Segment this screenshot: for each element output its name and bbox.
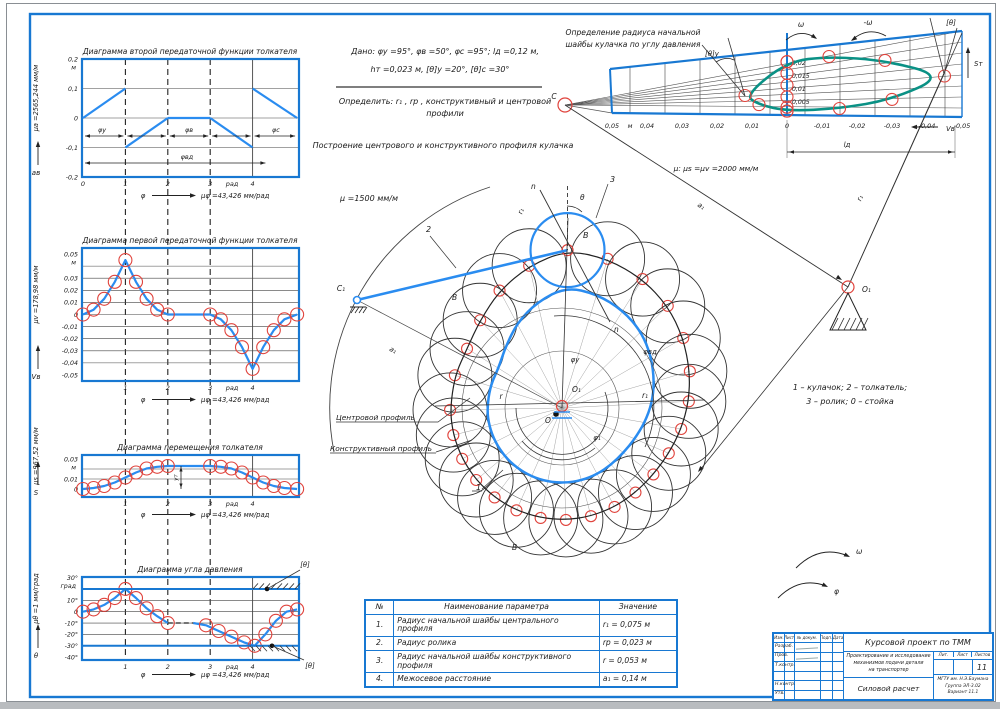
legend-line1: 1 – кулачок; 2 – толкатель; (793, 383, 907, 392)
y-unit: град (60, 583, 76, 590)
y-tick: -30° (65, 642, 78, 650)
v-tick: 0,02 (710, 122, 724, 130)
x-tick: 2 (166, 180, 170, 188)
plot-curve (83, 466, 297, 489)
list-label: Лист (953, 652, 972, 657)
x-unit: рад (225, 180, 239, 188)
b-bottom-label: B (512, 543, 517, 552)
x-tick: 0 (81, 180, 85, 188)
x-tick: 1 (123, 384, 127, 392)
fan-line (565, 64, 962, 105)
sheet-bottom-shadow (0, 702, 1000, 709)
a1-dim-label: a₁ (696, 201, 706, 212)
x-unit: рад (225, 384, 239, 392)
tb-signature (796, 647, 818, 649)
x-scale-label: μφ =43,426 мм/рад (200, 511, 270, 519)
svg-text:φу: φу (98, 126, 106, 134)
y-tick: 0,03 (64, 456, 78, 463)
y-tick: 0,03 (64, 276, 78, 283)
point-c-label: C (551, 92, 557, 101)
table-row: 4.Межосевое расстояниеa₁ = 0,14 м (365, 673, 677, 687)
tb-head-col: Изм. (774, 635, 784, 640)
tb-row-label: Н.контр. (775, 682, 795, 687)
tb-org-line: МГТУ им. Н.Э.Баумана (934, 677, 992, 684)
plot-curve (193, 609, 297, 645)
s-tick: 0,015 (792, 73, 810, 80)
x-tick: 3 (208, 500, 212, 508)
x-axis-symbol: φ (141, 511, 146, 519)
tb-signature (796, 657, 818, 659)
tb-hline (774, 671, 844, 672)
x-tick: 2 (166, 500, 170, 508)
x-axis-symbol: φ (141, 396, 146, 404)
callout-2: 2 (426, 225, 431, 234)
y-tick: 0,02 (64, 288, 78, 295)
y-unit: м (71, 465, 76, 472)
table-cell: 1. (365, 614, 394, 636)
table-cell: 3. (365, 650, 394, 672)
tr-scale: μ: μs =μv =2000 мм/м (673, 164, 759, 173)
tb-desc-line: механизмов подачи детали (844, 661, 933, 668)
given-line2: hт =0,023 м, [θ]у =20°, [θ]с =30° (371, 65, 510, 74)
table-header-name: Наименование параметра (394, 600, 600, 614)
plot-curve (253, 89, 298, 119)
r-label: r (499, 392, 503, 401)
table-cell: Радиус ролика (394, 637, 600, 651)
y-scale-label: μθ =1 мм/град (32, 573, 40, 625)
table-header-value: Значение (599, 600, 677, 614)
tb-head-col: Лист (784, 635, 794, 640)
v-tick: 0,05 (605, 122, 619, 130)
titleblock-lit-row: Лит. Лист Листов (934, 652, 992, 660)
phi-1-label: φ₁ (593, 434, 601, 442)
y-unit: м (71, 260, 76, 267)
svg-text:м: м (628, 122, 633, 130)
svg-text:φс: φс (272, 126, 280, 134)
y-tick: 0,01 (64, 300, 78, 307)
listov-label: Листов (973, 652, 992, 657)
stand-point-label: O₁ (862, 285, 871, 294)
o-label: O (545, 416, 551, 425)
plot-title: Диаграмма второй передаточной функции то… (82, 47, 298, 56)
titleblock-project: Курсовой проект по ТММ (844, 634, 992, 652)
x-tick: 1 (123, 663, 127, 671)
a1-label: a₁ (388, 345, 398, 355)
x-tick: 2 (166, 384, 170, 392)
plot-title: Диаграмма первой передаточной функции то… (82, 236, 298, 245)
x-unit: рад (225, 663, 239, 671)
x-tick: 4 (251, 384, 255, 392)
svg-text:φвд: φвд (181, 153, 194, 161)
x-tick: 4 (251, 180, 255, 188)
v-tick: -0,03 (884, 122, 901, 130)
titleblock-org: МГТУ им. Н.Э.БауманаГруппа ЭЛ-3.02Вариан… (934, 675, 992, 699)
tb-head-col: Дата (832, 635, 844, 640)
y-tick: -0,01 (62, 324, 78, 331)
task-line1: Определить: r₁ , rр , конструктивный и ц… (339, 97, 551, 106)
v-tick: 0,03 (675, 122, 689, 130)
table-cell: 2. (365, 637, 394, 651)
y-tick: 10° (67, 597, 78, 605)
lever-pivot (354, 297, 361, 304)
radial-ray (562, 408, 591, 516)
x-tick: 3 (208, 180, 212, 188)
x-tick: 4 (251, 663, 255, 671)
center-profile-label: Центровой профиль (336, 413, 415, 422)
table-header-num: № (365, 600, 394, 614)
tb-desc-line: Проектирование и исследование (844, 654, 933, 661)
titleblock-left: Изм.Лист№ докум.Подп.ДатаРазраб.Пров.Т.к… (774, 634, 844, 699)
v-axis-label: Vв (946, 125, 955, 133)
phi-vd-label: φвд (643, 348, 657, 356)
callout-3: 3 (610, 175, 615, 184)
x-tick: 1 (123, 500, 127, 508)
n-label-top: n (531, 182, 536, 191)
s-axis-label: Sт (974, 60, 983, 68)
tr-title1: Определение радиуса начальной (566, 28, 701, 37)
x-axis-symbol: φ (141, 671, 146, 679)
callout-1: 1 (476, 483, 481, 492)
r-dim-label: r₁ (855, 194, 865, 203)
y-scale-label: μs =967,52 мм/м (32, 427, 40, 486)
c1-label: C₁ (337, 284, 345, 293)
x-tick: 1 (123, 180, 127, 188)
tb-row-label: Утв. (775, 691, 795, 696)
title-block: Изм.Лист№ докум.Подп.ДатаРазраб.Пров.Т.к… (772, 632, 994, 701)
y-tick: -0,03 (62, 348, 78, 355)
y-tick: -20° (65, 631, 78, 639)
y-axis-symbol: aв (32, 169, 40, 177)
given-line1: Дано: φу =95°, φв =50°, φс =95°; lд =0,1… (350, 47, 539, 56)
tb-row-label: Т.контр. (775, 663, 795, 668)
s-tick: 0,01 (792, 86, 806, 93)
v-tick: 0,01 (745, 122, 759, 130)
y-tick: 30° (67, 574, 78, 582)
cam-profile-construction (330, 184, 850, 598)
table-row: 2.Радиус роликаrр = 0,023 м (365, 637, 677, 651)
plot-title: Диаграмма угла давления (137, 565, 243, 574)
legend-line2: 3 – ролик; 0 – стойка (806, 397, 894, 406)
radial-ray (529, 266, 562, 408)
v-tick: -0,02 (849, 122, 866, 130)
titleblock-doctype: Силовой расчет (844, 678, 934, 699)
y-tick: -0,05 (62, 372, 78, 379)
table-cell: r₁ = 0,075 м (599, 614, 677, 636)
drawing-sheet: 0,20,10-0,1-0,2м01234радДиаграмма второй… (0, 0, 1000, 714)
v-tick: 0,04 (640, 122, 654, 130)
b-left-label: B (452, 293, 457, 302)
y-tick: 0,1 (68, 86, 78, 93)
y-tick: 0,2 (68, 56, 78, 63)
theta-u-label: [θ]у (705, 50, 720, 58)
x-tick: 3 (208, 663, 212, 671)
y-tick: -0,2 (66, 174, 78, 181)
tb-row-label: Разраб. (775, 644, 795, 649)
y-tick: 0,01 (64, 476, 78, 483)
x-axis-symbol: φ (141, 192, 146, 200)
tb-head-col: Подп. (820, 635, 832, 640)
y-scale-label: μv =178,98 мм/м (32, 265, 40, 324)
table-row: 3.Радиус начальной шайбы конструктивного… (365, 650, 677, 672)
x-tick: 4 (251, 500, 255, 508)
y-tick: -10° (65, 619, 78, 627)
y-tick: 0 (74, 115, 78, 122)
table-cell: Радиус начальной шайбы центрального проф… (394, 614, 600, 636)
left-plots: 0,20,10-0,1-0,2м01234радДиаграмма второй… (32, 47, 316, 679)
svg-text:yт: yт (174, 473, 180, 481)
x-unit: рад (225, 500, 239, 508)
n-label-bottom: n (614, 325, 619, 334)
svg-text:[θ]: [θ] (305, 662, 315, 670)
y-axis-symbol: θ (34, 652, 39, 660)
minus-omega-label: -ω (864, 18, 873, 27)
table-cell: 4. (365, 673, 394, 687)
radial-ray (480, 320, 562, 408)
tb-row-label: Пров. (775, 653, 795, 658)
task-line2: профили (426, 109, 464, 118)
y-axis-symbol: Vв (32, 373, 41, 381)
omega2-label: ω (856, 547, 862, 556)
radial-ray (541, 408, 562, 518)
y-tick: 0,05 (64, 251, 78, 258)
radial-ray (450, 408, 562, 410)
plot-curve (125, 118, 167, 148)
titleblock-desc: Проектирование и исследованиемеханизмов … (844, 652, 934, 678)
y-tick: -0,04 (62, 360, 78, 367)
plot-title: Диаграмма перемещения толкателя (116, 443, 263, 452)
r1-label: r₁ (642, 391, 648, 400)
construction-heading: Построение центрового и конструктивного … (313, 141, 574, 150)
r1-rot-label: r₁ (516, 207, 526, 215)
y-tick: -0,02 (62, 336, 78, 343)
pressure-angle-construction: 0,050,040,030,020,010-0,01-0,02-0,03-0,0… (558, 18, 970, 472)
table-cell: rр = 0,023 м (599, 637, 677, 651)
theta-angle-label: θ (580, 193, 585, 202)
table-cell: Радиус начальной шайбы конструктивного п… (394, 650, 600, 672)
y-axis-symbol: S (34, 489, 39, 497)
tb-head-col: № докум. (794, 635, 820, 640)
cam-scale-label: μ =1500 мм/м (339, 194, 398, 203)
o1-label: O₁ (572, 385, 581, 394)
table-cell: Межосевое расстояние (394, 673, 600, 687)
omega-label: ω (798, 20, 804, 29)
parameters-table: № Наименование параметра Значение 1.Ради… (364, 599, 678, 688)
v-tick: -0,05 (954, 122, 971, 130)
radial-ray (562, 408, 566, 520)
y-scale-label: μa =2565,244 мм/м (32, 65, 40, 133)
x-scale-label: μφ =43,426 мм/рад (200, 192, 270, 200)
theta-limit-label: [θ] (946, 19, 956, 27)
sheet-row-divider1 (953, 660, 954, 675)
plot-curve (210, 118, 252, 148)
plot-curve (83, 89, 125, 119)
ld-dim-label: lд (844, 141, 851, 149)
svg-text:[θ]: [θ] (300, 561, 310, 569)
y-unit: м (71, 65, 76, 72)
radial-ray (562, 408, 615, 507)
table-cell: r = 0,053 м (599, 650, 677, 672)
radial-ray (562, 408, 681, 429)
table-cell: a₁ = 0,14 м (599, 673, 677, 687)
x-scale-label: μφ =43,426 мм/рад (200, 671, 270, 679)
v-tick: -0,01 (814, 122, 831, 130)
titleblock-sheet-row: 11 (934, 660, 992, 675)
s-tick: 0,005 (792, 99, 810, 106)
param-table-body: 1.Радиус начальной шайбы центрального пр… (365, 614, 677, 687)
b-top-label: B (583, 231, 589, 240)
table-row: 1.Радиус начальной шайбы центрального пр… (365, 614, 677, 636)
phi2-label: φ (834, 587, 839, 596)
phi-u-label: φу (571, 356, 581, 364)
y-tick: -40° (65, 653, 78, 661)
lit-label: Лит. (934, 652, 953, 657)
tb-org-line: Вариант 11.1 (934, 690, 992, 697)
x-scale-label: μφ =43,426 мм/рад (200, 396, 270, 404)
constructive-profile-label: Конструктивный профиль (330, 444, 432, 453)
svg-text:φв: φв (185, 126, 193, 134)
sheet-number: 11 (972, 660, 992, 675)
x-tick: 3 (208, 384, 212, 392)
x-tick: 2 (166, 663, 170, 671)
tr-title2: шайбы кулачка по углу давления (565, 40, 700, 49)
tb-desc-line: на транспортер (844, 668, 933, 675)
y-tick: -0,1 (66, 145, 78, 152)
